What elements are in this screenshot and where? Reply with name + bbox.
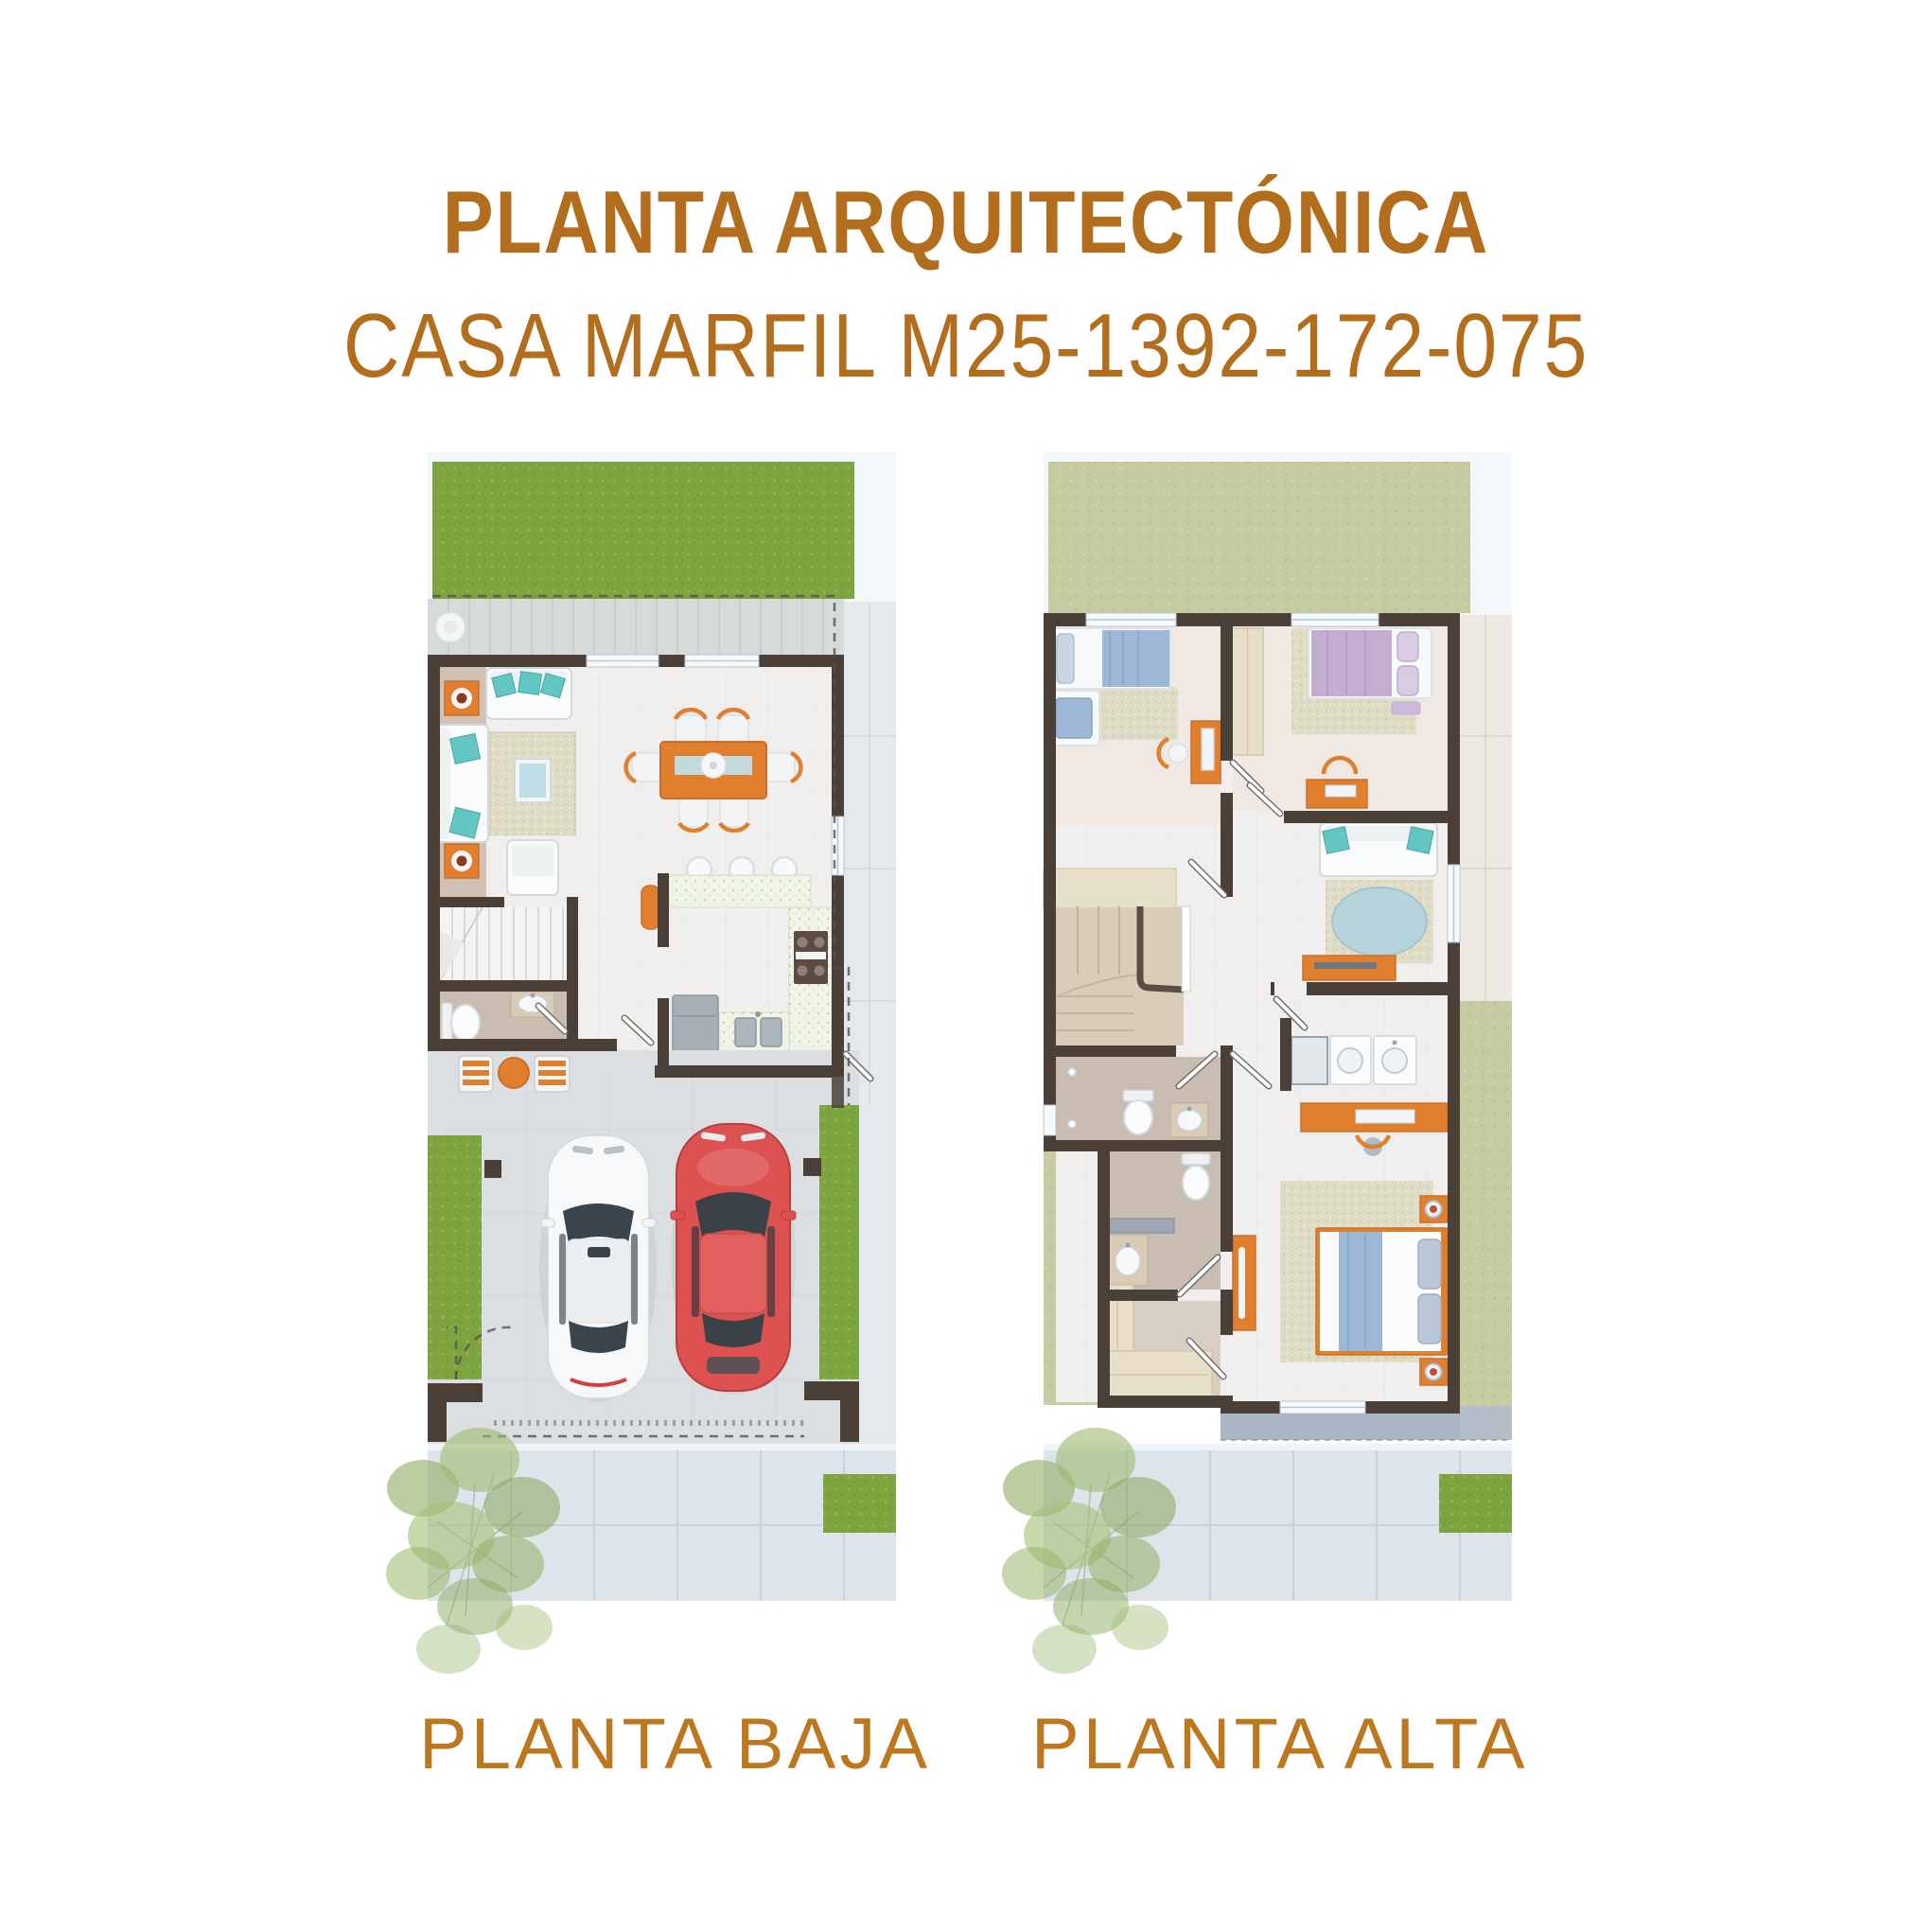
long-sofa bbox=[435, 725, 488, 842]
gate-post bbox=[803, 1158, 821, 1176]
dining-chair bbox=[679, 799, 708, 831]
dryer bbox=[1374, 1036, 1416, 1084]
nightstand bbox=[1420, 1196, 1448, 1222]
laundry-nook bbox=[1291, 1036, 1416, 1084]
dining-chair bbox=[764, 753, 800, 782]
floor-plan-planta-baja bbox=[428, 452, 896, 1601]
nightstand bbox=[1420, 1359, 1448, 1385]
rug bbox=[1098, 687, 1178, 740]
page-title: PLANTA ARQUITECTÓNICA bbox=[135, 178, 1797, 267]
laundry-window bbox=[1291, 1037, 1327, 1084]
wardrobe bbox=[1232, 628, 1263, 755]
oval-rug bbox=[1326, 880, 1433, 963]
double-bed bbox=[1308, 628, 1431, 698]
car-white bbox=[539, 1133, 657, 1402]
high-chair bbox=[641, 886, 659, 929]
stove bbox=[794, 931, 828, 984]
dining-chair bbox=[626, 753, 662, 782]
gate-post bbox=[484, 1160, 501, 1178]
side-table-plant bbox=[445, 844, 479, 878]
driveway bbox=[428, 1050, 896, 1444]
window bbox=[1044, 1105, 1056, 1135]
bedroom-seat bbox=[1048, 691, 1099, 746]
patio-chair bbox=[535, 1056, 570, 1092]
shower-head bbox=[1068, 1068, 1076, 1076]
bathroom-sink bbox=[1108, 1235, 1148, 1286]
poster-page: PLANTA ARQUITECTÓNICA CASA MARFIL M25-13… bbox=[0, 0, 1932, 1932]
toilet bbox=[1123, 1090, 1153, 1134]
hall-shelf bbox=[1044, 869, 1176, 908]
desk bbox=[1191, 721, 1221, 783]
patio-table bbox=[499, 1058, 529, 1088]
page-subtitle: CASA MARFIL M25-1392-172-075 bbox=[135, 301, 1797, 392]
bed-bench bbox=[1392, 702, 1420, 714]
washer bbox=[1330, 1036, 1371, 1084]
window bbox=[1291, 613, 1379, 626]
refrigerator bbox=[673, 995, 718, 1052]
toilet bbox=[442, 1003, 480, 1043]
patio-chair bbox=[459, 1056, 493, 1092]
desk bbox=[1301, 1103, 1448, 1132]
dining-chair bbox=[676, 710, 706, 744]
window bbox=[1280, 1401, 1365, 1414]
toilet bbox=[1182, 1153, 1210, 1200]
floor-plan-planta-alta bbox=[1044, 452, 1512, 1601]
car-red bbox=[671, 1122, 796, 1395]
bathroom-sink bbox=[1170, 1103, 1208, 1137]
window bbox=[1448, 865, 1460, 942]
dresser bbox=[1233, 1236, 1256, 1330]
tv-console bbox=[1303, 956, 1396, 980]
shower-drain bbox=[1068, 1120, 1076, 1128]
kitchen-island bbox=[669, 875, 811, 907]
plan-label-planta-alta: PLANTA ALTA bbox=[1031, 1709, 1523, 1781]
tv-sofa bbox=[1320, 823, 1437, 876]
side-table-plant bbox=[445, 681, 479, 715]
window bbox=[1086, 613, 1176, 626]
bath-shelf bbox=[1110, 1219, 1174, 1233]
terrace-table bbox=[435, 612, 465, 642]
dining-chair bbox=[720, 799, 748, 831]
single-bed bbox=[1051, 628, 1170, 689]
window bbox=[587, 655, 659, 667]
window bbox=[685, 655, 759, 667]
double-bed bbox=[1316, 1228, 1448, 1355]
planta-baja-drawing bbox=[428, 452, 896, 1601]
coffee-table bbox=[515, 759, 551, 802]
dining-chair bbox=[718, 710, 748, 744]
planta-alta-drawing bbox=[1044, 452, 1512, 1601]
plan-label-planta-baja: PLANTA BAJA bbox=[419, 1709, 911, 1781]
loveseat-sofa bbox=[486, 668, 571, 719]
dining-table bbox=[660, 742, 766, 799]
armchair bbox=[507, 840, 558, 895]
